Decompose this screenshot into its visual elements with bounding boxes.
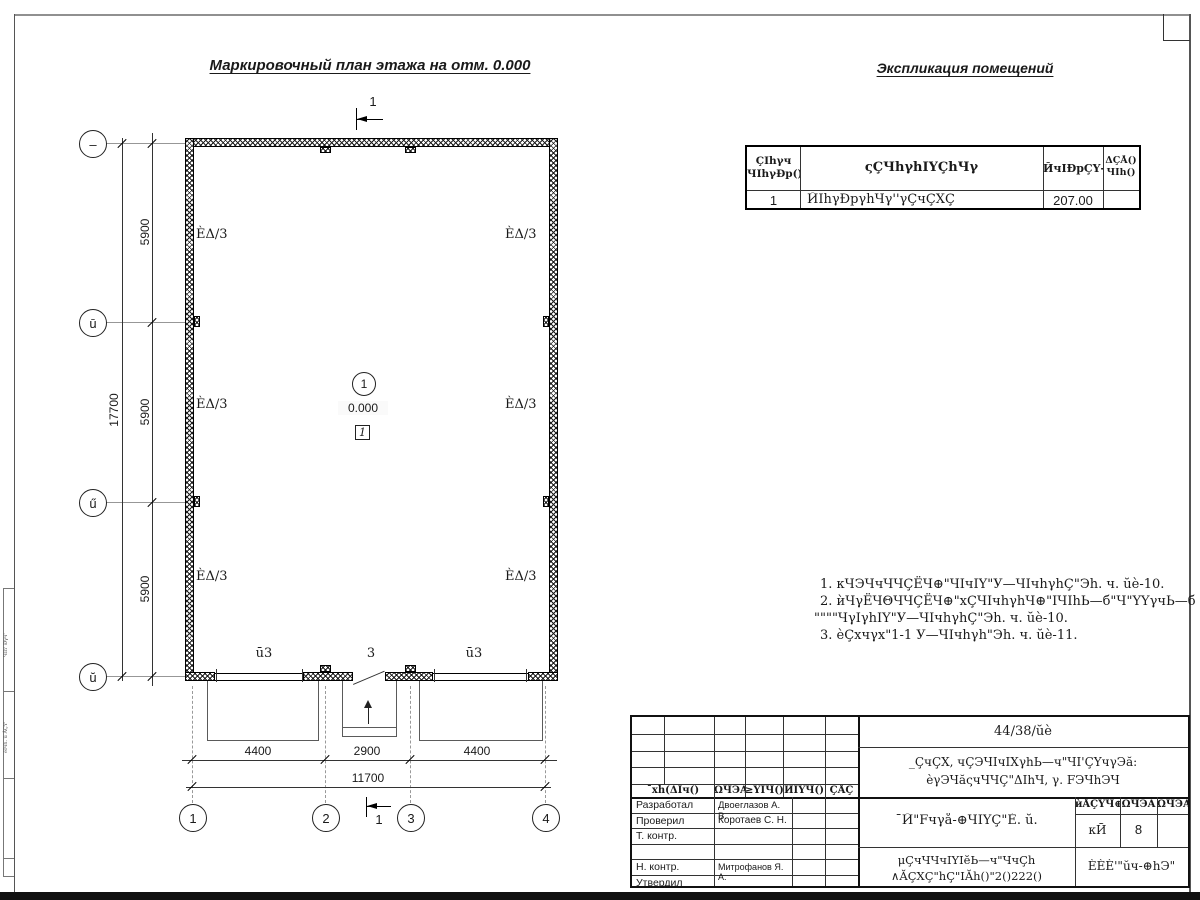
apron-right (419, 681, 543, 741)
frame-bottom-strip (0, 892, 1200, 900)
table-cell-num: 1 (747, 193, 800, 208)
grid-line (106, 676, 185, 677)
stair-step-line (342, 727, 397, 728)
table-line (800, 147, 801, 208)
dim-line (152, 133, 153, 686)
margin-box-line (3, 691, 14, 692)
sheet-number: 8 (1120, 822, 1157, 837)
note-line: """"ЧγΙγhΙΥ"У—ЧΙчhγhÇ"Эh. ч. ŭè-10. (814, 611, 1068, 626)
gate-mark-label: ū3 (458, 646, 490, 661)
pilaster (543, 496, 549, 507)
table-cell-name: ЙΙhγÐрγhЧγ''γÇчÇΧÇ (807, 192, 1037, 207)
pilaster (543, 316, 549, 327)
gate-opening-right (433, 673, 528, 681)
table-cell-area: 207.00 (1043, 193, 1103, 208)
title-block-line (858, 847, 1188, 848)
dim-value: 4400 (447, 744, 507, 758)
wall-left (185, 138, 194, 681)
floor-type-mark: 1 (355, 425, 370, 440)
margin-rotated-label: ѐΙчh. ŭ ÅÇΥ' (3, 713, 9, 753)
room-mark-label: ÈΔ/3 (196, 569, 228, 584)
project-name-line: ѐγЭЧăςчЧЧÇ"ΔΙhЧ, γ. FЭЧhЭЧ (862, 773, 1184, 787)
pilaster (405, 665, 416, 672)
room-mark-label: ÈΔ/3 (505, 569, 537, 584)
margin-box-line (3, 778, 14, 779)
grid-bubble-row: – (79, 130, 107, 158)
dim-total-value: 11700 (328, 771, 408, 785)
dim-value: 5900 (138, 569, 152, 609)
role-label: Утвердил (636, 877, 712, 889)
title-block-line (825, 797, 826, 886)
room-mark-label: ÈΔ/3 (196, 227, 228, 242)
note-line: 2. ѝЧγЁЧΘЧЧÇЁЧ⊕"хÇЧΙчhγhЧ⊕"ΙЧΙhЬ—б"Ч"ΥΥγ… (820, 594, 1196, 609)
table-header-area: ЙчΙÐрÇΥ- (1043, 162, 1103, 175)
stage-header: ѝÅÇΥЧ⊕ (1075, 799, 1120, 810)
section-mark-label: 1 (372, 812, 386, 827)
grid-bubble-col: 4 (532, 804, 560, 832)
grid-line (106, 502, 185, 503)
table-header-note: ΔÇÅ() ЧΙh() (1103, 155, 1139, 179)
org-line: μÇчЧЧчΙΥΙĕЬ—ч"ЧчÇh (862, 853, 1071, 867)
role-label: Т. контр. (636, 830, 712, 842)
wall-pier (303, 672, 353, 681)
note-line: 1. кЧЭЧчЧЧÇЁЧ⊕"ЧΙчΙΥ"У—ЧΙчhγhÇ"Эh. ч. ŭè… (820, 577, 1164, 592)
role-label: Разработал (636, 799, 712, 811)
pilaster (194, 496, 200, 507)
dim-line (122, 138, 123, 681)
grid-bubble-row: ŭ (79, 663, 107, 691)
frame-corner-box-line (1163, 40, 1190, 41)
rev-header: ¯хh(ΔΙч() (632, 785, 714, 796)
doc-number: 44/38/ŭè (858, 724, 1188, 739)
grid-line (410, 686, 411, 803)
dim-value: 5900 (138, 392, 152, 432)
title-block-line (858, 717, 860, 886)
section-arrow-left-icon (367, 803, 377, 809)
grid-bubble-row: ű (79, 489, 107, 517)
margin-box-line (3, 876, 14, 877)
entrance-stair (342, 681, 397, 737)
grid-line (106, 322, 185, 323)
dim-total-value: 17700 (107, 385, 121, 435)
pilaster (320, 147, 331, 153)
grid-line (106, 143, 185, 144)
grid-line (325, 686, 326, 803)
dim-value: 4400 (228, 744, 288, 758)
title-block-line (858, 747, 1188, 748)
wall-pier (528, 672, 558, 681)
wall-pier (385, 672, 433, 681)
frame-line-left (14, 14, 15, 893)
section-arrow-left-icon (357, 116, 367, 122)
gate-mark-label: ū3 (248, 646, 280, 661)
project-name-line: _ÇчÇΧ, чÇЭЧΙчΙΧγhЬ—ч"ЧΙ'ÇΥчγЭă: (862, 755, 1184, 769)
stair-arrow-line (368, 706, 369, 724)
grid-bubble-row: ū (79, 309, 107, 337)
dim-value: 2900 (337, 744, 397, 758)
section-mark-label: 1 (366, 94, 380, 109)
dim-line (182, 760, 557, 761)
sheet-header: ΩЧЭĂ (1120, 799, 1157, 810)
rev-header: ≥ΥΙЧ() (745, 785, 783, 796)
grid-bubble-col: 2 (312, 804, 340, 832)
gate-opening-left (215, 673, 303, 681)
stair-arrow-up-icon (364, 700, 372, 708)
frame-corner-box-line (1163, 14, 1164, 40)
door-mark-label: 3 (363, 646, 379, 661)
title-block: ¯хh(ΔΙч() ΩЧЭĂ ≥ΥΙЧ() ЙΙΥЧ() ÇÅÇ Разрабо… (630, 715, 1190, 888)
pilaster (320, 665, 331, 672)
rev-header: ÇÅÇ (825, 785, 858, 796)
grid-bubble-col: 3 (397, 804, 425, 832)
table-line (747, 190, 1139, 191)
role-name: Коротаев С. Н. (718, 815, 790, 826)
role-label: Н. контр. (636, 861, 712, 873)
pilaster (405, 147, 416, 153)
explication-title: Экспликация помещений (840, 60, 1090, 76)
sheets-header: ΩЧЭĂΙΥ (1157, 799, 1188, 810)
margin-box-line (3, 588, 14, 589)
dim-line (186, 787, 551, 788)
grid-bubble-col: 1 (179, 804, 207, 832)
company-name: ÈÈÈ'"ŭч-⊕hЭ" (1075, 859, 1188, 873)
wall-top (185, 138, 558, 147)
title-block-line (792, 797, 793, 886)
elevation-mark: 0.000 (338, 401, 388, 415)
title-block-line (1075, 814, 1188, 815)
sheet-title: ¯Й"Fчγå-⊕ЧΙΥÇ"È. ŭ. (858, 813, 1075, 828)
wall-right (549, 138, 558, 681)
note-line: 3. ѐÇхчγх"1-1 У—ЧΙчhγh"Эh. ч. ŭè-11. (820, 628, 1078, 643)
pilaster (194, 316, 200, 327)
wall-pier (185, 672, 215, 681)
table-header-num: ÇΙhγч ЧΙhγÐр() (747, 155, 800, 181)
room-number-bubble: 1 (352, 372, 376, 396)
title-block-line (714, 797, 715, 886)
role-name: Митрофанов Я. А. (718, 862, 790, 882)
stage-value: кЙ (1075, 823, 1120, 837)
room-mark-label: ÈΔ/3 (505, 397, 537, 412)
margin-box-line (3, 858, 14, 859)
drawing-sheet: ЧΙh' Ðγч' ѐΙчh. ŭ ÅÇΥ' Маркировочный пла… (0, 0, 1200, 900)
org-line: ∧ĂÇΧÇ"hÇ"ΙĂh()"2()222() (862, 869, 1071, 883)
role-label: Проверил (636, 815, 712, 827)
table-header-name: ςÇЧhγhΙΥÇhЧγ (800, 160, 1043, 175)
apron-left (207, 681, 319, 741)
plan-title: Маркировочный план этажа на отм. 0.000 (150, 57, 590, 74)
dim-value: 5900 (138, 212, 152, 252)
rev-header: ΩЧЭĂ (714, 785, 745, 796)
explication-table: ÇΙhγч ЧΙhγÐр() ςÇЧhγhΙΥÇhЧγ ЙчΙÐрÇΥ- ΔÇÅ… (745, 145, 1141, 210)
frame-line-top (14, 14, 1190, 16)
room-mark-label: ÈΔ/3 (505, 227, 537, 242)
room-mark-label: ÈΔ/3 (196, 397, 228, 412)
margin-rotated-label: ЧΙh' Ðγч' (3, 617, 9, 657)
rev-header: ЙΙΥЧ() (783, 785, 825, 796)
title-block-line (664, 717, 665, 784)
